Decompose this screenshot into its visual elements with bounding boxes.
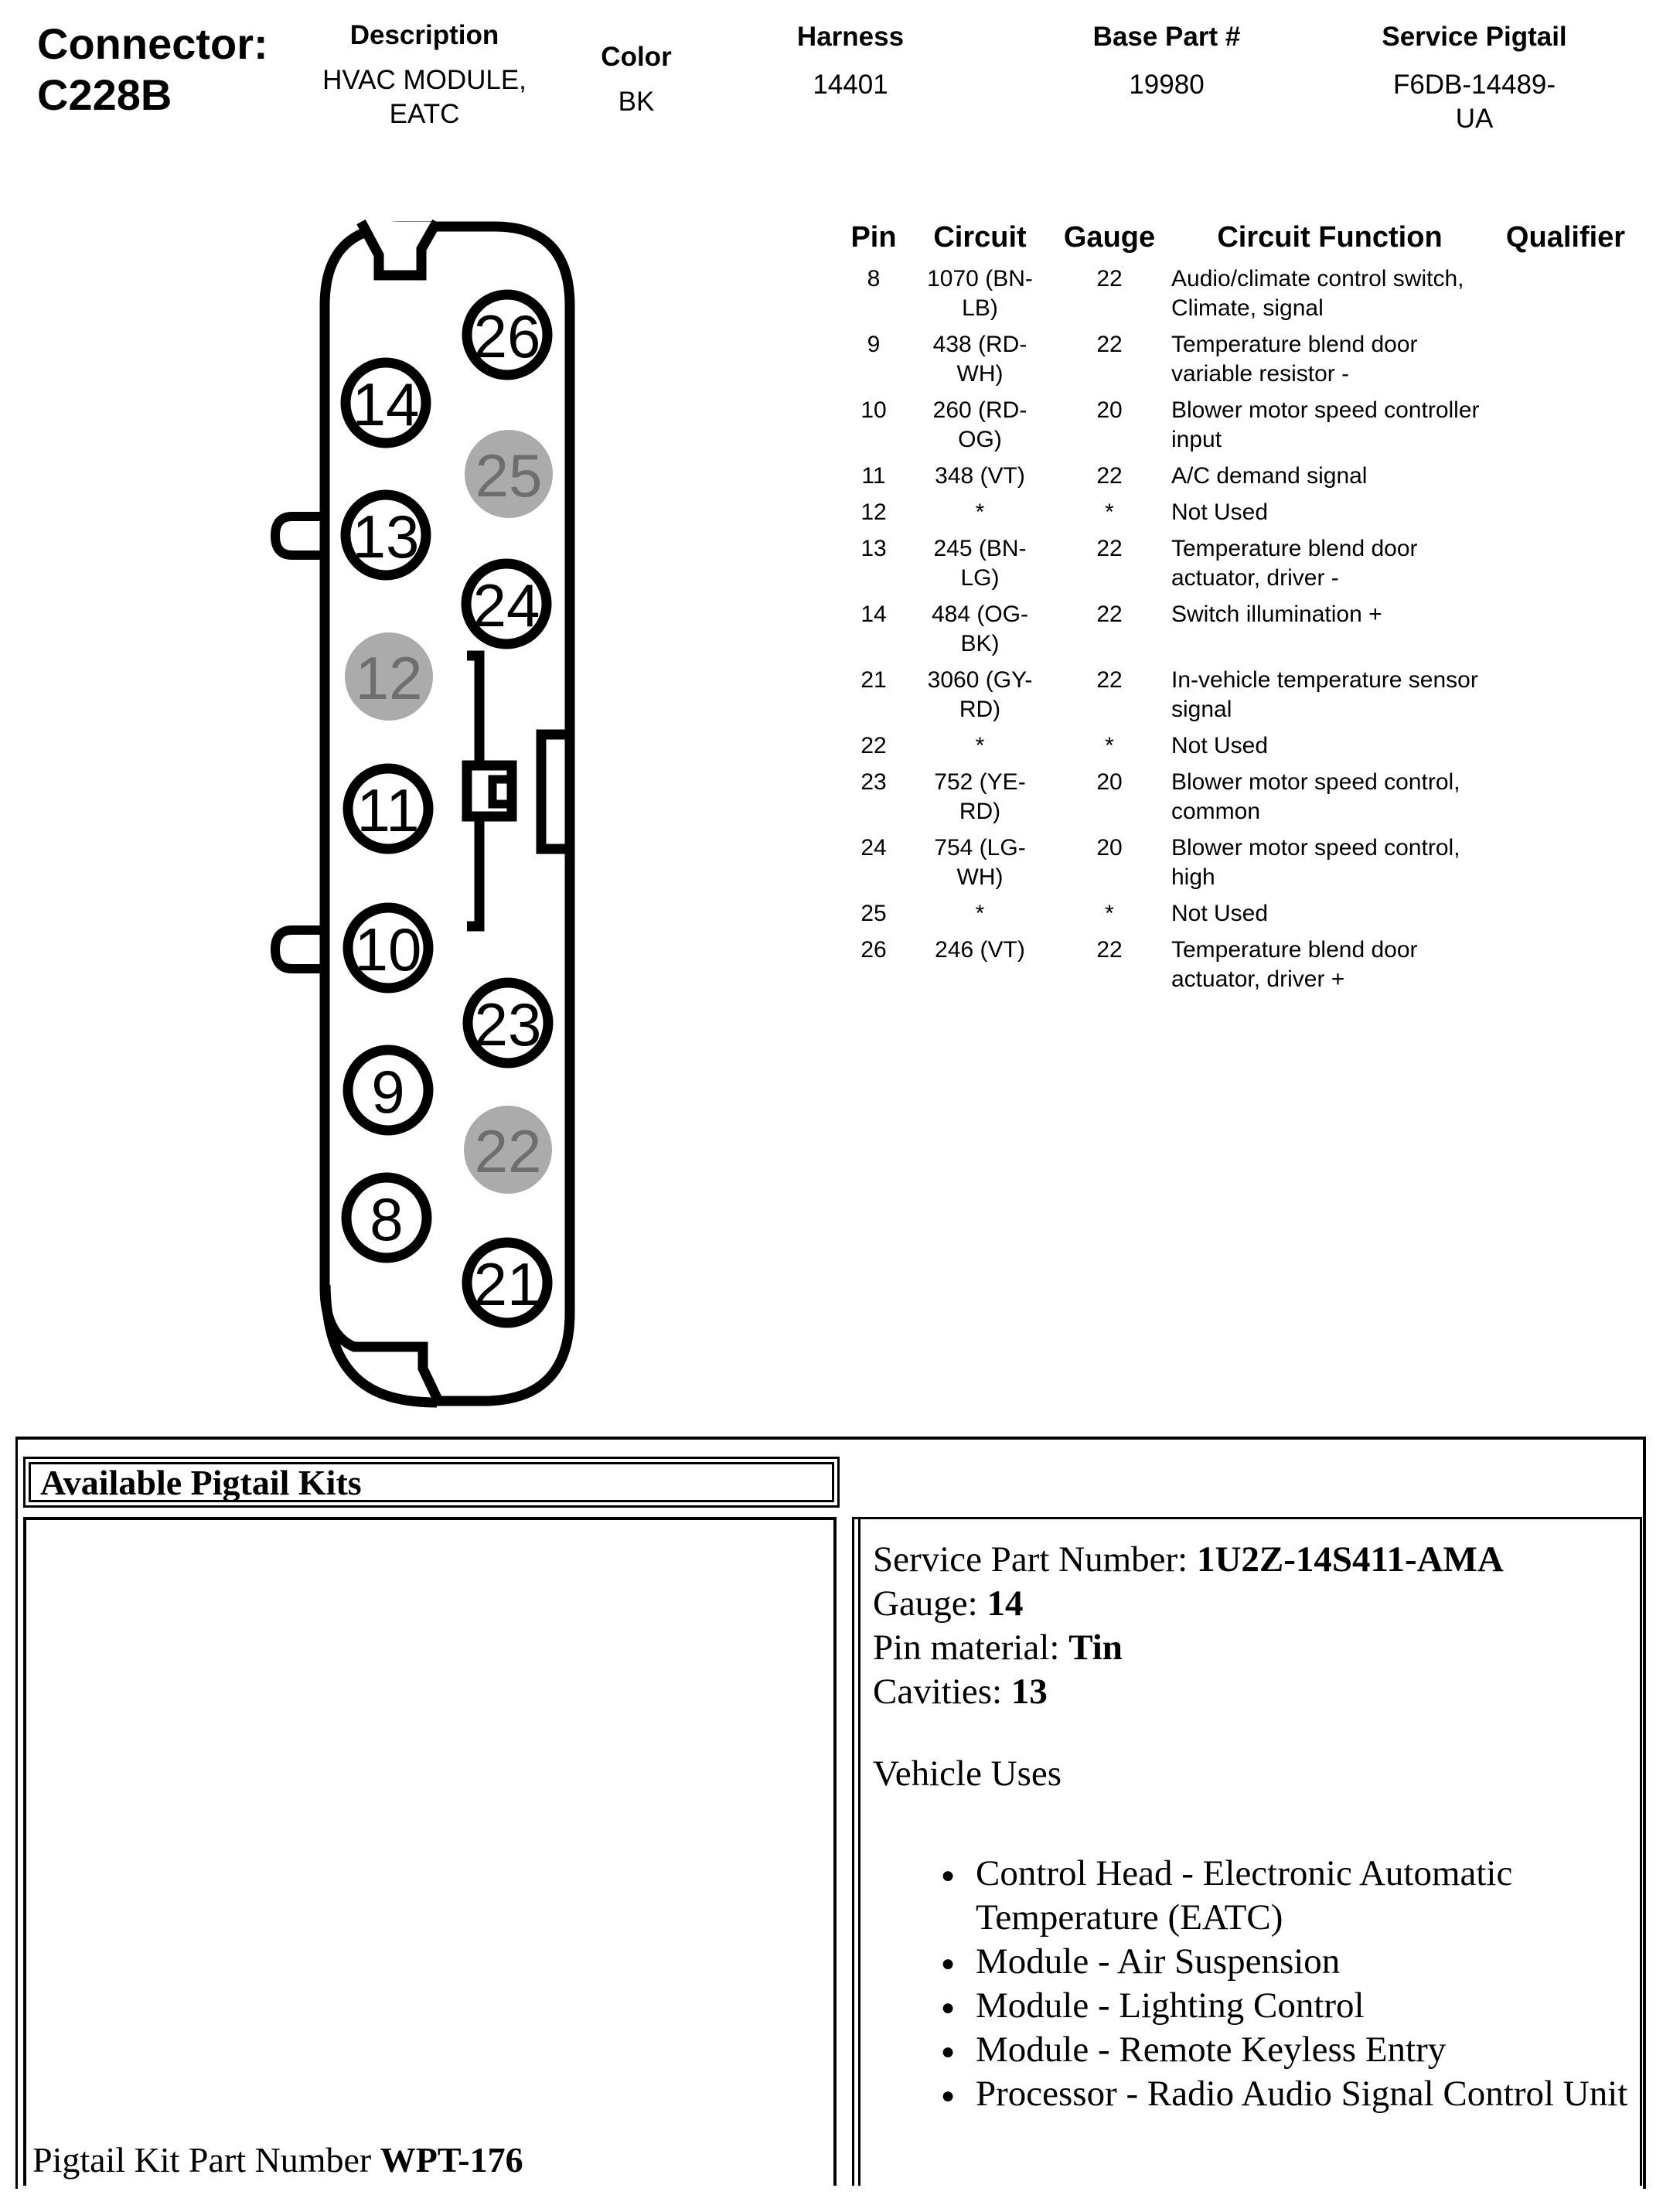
function-cell: A/C demand signal <box>1171 462 1488 491</box>
gauge-cell: 20 <box>1055 833 1164 892</box>
pin-row: 81070 (BN-LB)22Audio/climate control swi… <box>843 264 1663 323</box>
connector-title: Connector: C228B <box>37 19 268 121</box>
service-part-content: Service Part Number: 1U2Z-14S411-AMAGaug… <box>854 1519 1640 2116</box>
pin-cell: 11 <box>843 462 905 491</box>
pin-row: 24754 (LG-WH)20Blower motor speed contro… <box>843 833 1663 892</box>
vehicle-use-item: Control Head - Electronic Automatic Temp… <box>873 1852 1631 1940</box>
service-part-panel: Service Part Number: 1U2Z-14S411-AMAGaug… <box>852 1517 1642 2186</box>
pin-row: 9438 (RD-WH)22Temperature blend door var… <box>843 330 1663 389</box>
vehicle-uses-heading: Vehicle Uses <box>873 1752 1629 1796</box>
pin-number-label: 11 <box>357 776 420 844</box>
function-cell: Audio/climate control switch, Climate, s… <box>1171 264 1488 323</box>
header-field-base-part: Base Part # 19980 <box>1093 22 1241 102</box>
pin-number-label: 22 <box>475 1117 542 1185</box>
gauge-cell: 22 <box>1055 936 1164 994</box>
gauge-cell: 22 <box>1055 666 1164 724</box>
gauge-cell: * <box>1055 498 1164 527</box>
pin-number-label: 13 <box>353 503 420 571</box>
field-value: HVAC MODULE, EATC <box>293 63 556 131</box>
function-cell: Temperature blend door actuator, driver … <box>1171 936 1488 994</box>
pin-row: 25**Not Used <box>843 899 1663 929</box>
pin-cell: 26 <box>843 936 905 994</box>
gauge-cell: 22 <box>1055 534 1164 593</box>
pin-row: 14484 (OG-BK)22Switch illumination + <box>843 600 1663 659</box>
circuit-cell: 3060 (GY-RD) <box>912 666 1048 724</box>
circuit-cell: * <box>912 899 1048 929</box>
pigtail-kit-number-line: Pigtail Kit Part Number WPT-176 <box>32 2139 523 2180</box>
kit-number: WPT-176 <box>380 2140 523 2180</box>
pin-number-label: 23 <box>475 990 542 1058</box>
qualifier-cell <box>1496 899 1635 929</box>
vehicle-use-item: Module - Remote Keyless Entry <box>873 2028 1631 2072</box>
qualifier-cell <box>1496 768 1635 827</box>
pin-row: 213060 (GY-RD)22In-vehicle temperature s… <box>843 666 1663 724</box>
field-value: F6DB-14489-UA <box>1380 68 1569 136</box>
pigtail-kit-panel: Pigtail Kit Part Number WPT-176 <box>23 1517 837 2186</box>
function-cell: In-vehicle temperature sensor signal <box>1171 666 1488 724</box>
function-cell: Temperature blend door actuator, driver … <box>1171 534 1488 593</box>
circuit-cell: 245 (BN-LG) <box>912 534 1048 593</box>
pin-number-label: 24 <box>473 571 540 639</box>
pin-cell: 9 <box>843 330 905 389</box>
gauge-cell: * <box>1055 731 1164 761</box>
pin-number-label: 21 <box>474 1250 541 1318</box>
header-field-description: Description HVAC MODULE, EATC <box>293 20 556 131</box>
circuit-cell: 246 (VT) <box>912 936 1048 994</box>
col-header-function: Circuit Function <box>1171 220 1488 255</box>
pin-8: 8 <box>346 1178 427 1258</box>
function-cell: Blower motor speed control, high <box>1171 833 1488 892</box>
pin-23: 23 <box>468 983 548 1063</box>
pin-row: 10260 (RD-OG)20Blower motor speed contro… <box>843 396 1663 455</box>
pin-row: 26246 (VT)22Temperature blend door actua… <box>843 936 1663 994</box>
pin-cell: 25 <box>843 899 905 929</box>
vehicle-use-item: Processor - Radio Audio Signal Control U… <box>873 2072 1631 2116</box>
pin-row: 13245 (BN-LG)22Temperature blend door ac… <box>843 534 1663 593</box>
qualifier-cell <box>1496 666 1635 724</box>
detail-value: 14 <box>987 1583 1023 1624</box>
pin-9: 9 <box>348 1050 428 1130</box>
field-label: Service Pigtail <box>1380 22 1569 53</box>
circuit-cell: 1070 (BN-LB) <box>912 264 1048 323</box>
pinout-table: Pin Circuit Gauge Circuit Function Quali… <box>843 220 1663 1001</box>
pin-number-label: 12 <box>356 644 423 712</box>
field-label: Harness <box>797 22 904 53</box>
connector-face-diagram: 261425132412111023922821 <box>255 201 634 1438</box>
gauge-cell: 22 <box>1055 600 1164 659</box>
field-label: Color <box>601 42 671 73</box>
function-cell: Blower motor speed control, common <box>1171 768 1488 827</box>
pin-number-label: 25 <box>475 441 543 510</box>
field-label: Base Part # <box>1093 22 1241 53</box>
gauge-cell: 20 <box>1055 768 1164 827</box>
field-value: 19980 <box>1093 68 1241 102</box>
pin-cell: 8 <box>843 264 905 323</box>
pinout-table-header: Pin Circuit Gauge Circuit Function Quali… <box>843 220 1663 255</box>
pin-cell: 24 <box>843 833 905 892</box>
header-field-color: Color BK <box>601 42 671 119</box>
qualifier-cell <box>1496 264 1635 323</box>
circuit-cell: 438 (RD-WH) <box>912 330 1048 389</box>
pin-cell: 22 <box>843 731 905 761</box>
pin-21: 21 <box>467 1242 547 1323</box>
function-cell: Not Used <box>1171 731 1488 761</box>
pin-cell: 21 <box>843 666 905 724</box>
pin-22: 22 <box>464 1106 552 1194</box>
pigtail-kits-title: Available Pigtail Kits <box>40 1462 362 1503</box>
pin-row: 22**Not Used <box>843 731 1663 761</box>
pin-number-label: 14 <box>353 370 420 438</box>
detail-line: Service Part Number: 1U2Z-14S411-AMA <box>873 1538 1629 1582</box>
field-label: Description <box>293 20 556 51</box>
qualifier-cell <box>1496 534 1635 593</box>
function-cell: Switch illumination + <box>1171 600 1488 659</box>
qualifier-cell <box>1496 936 1635 994</box>
detail-line: Gauge: 14 <box>873 1582 1629 1626</box>
pin-12: 12 <box>345 632 433 721</box>
pin-cell: 13 <box>843 534 905 593</box>
vehicle-uses-list: Control Head - Electronic Automatic Temp… <box>873 1852 1631 2116</box>
pigtail-kits-title-inner: Available Pigtail Kits <box>29 1462 834 1502</box>
function-cell: Blower motor speed controller input <box>1171 396 1488 455</box>
field-value: 14401 <box>797 68 904 102</box>
qualifier-cell <box>1496 600 1635 659</box>
detail-label: Pin material: <box>873 1627 1068 1668</box>
gauge-cell: 22 <box>1055 330 1164 389</box>
qualifier-cell <box>1496 833 1635 892</box>
pin-number-label: 9 <box>371 1058 404 1126</box>
pin-cell: 14 <box>843 600 905 659</box>
pin-26: 26 <box>467 295 547 375</box>
pin-10: 10 <box>348 908 428 988</box>
detail-line: Pin material: Tin <box>873 1626 1629 1670</box>
function-cell: Temperature blend door variable resistor… <box>1171 330 1488 389</box>
pin-25: 25 <box>465 430 553 518</box>
pinout-table-body: 81070 (BN-LB)22Audio/climate control swi… <box>843 264 1663 994</box>
header-field-service-pigtail: Service Pigtail F6DB-14489-UA <box>1380 22 1569 136</box>
qualifier-cell <box>1496 462 1635 491</box>
function-cell: Not Used <box>1171 498 1488 527</box>
pin-row: 11348 (VT)22A/C demand signal <box>843 462 1663 491</box>
pin-13: 13 <box>346 495 426 575</box>
detail-value: 13 <box>1011 1672 1048 1712</box>
pin-number-label: 8 <box>370 1185 403 1253</box>
vehicle-use-item: Module - Air Suspension <box>873 1940 1631 1984</box>
pin-cell: 23 <box>843 768 905 827</box>
circuit-cell: 752 (YE-RD) <box>912 768 1048 827</box>
connector-spec-page: Connector: C228B Description HVAC MODULE… <box>0 0 1663 2212</box>
col-header-qualifier: Qualifier <box>1496 220 1635 255</box>
col-header-gauge: Gauge <box>1055 220 1164 255</box>
col-header-pin: Pin <box>843 220 905 255</box>
gauge-cell: 22 <box>1055 264 1164 323</box>
col-header-circuit: Circuit <box>912 220 1048 255</box>
connector-id: C228B <box>37 70 268 121</box>
pin-row: 12**Not Used <box>843 498 1663 527</box>
qualifier-cell <box>1496 731 1635 761</box>
circuit-cell: 348 (VT) <box>912 462 1048 491</box>
pin-cell: 12 <box>843 498 905 527</box>
detail-label: Cavities: <box>873 1672 1011 1712</box>
detail-value: 1U2Z-14S411-AMA <box>1197 1539 1504 1580</box>
function-cell: Not Used <box>1171 899 1488 929</box>
circuit-cell: 754 (LG-WH) <box>912 833 1048 892</box>
pigtail-kits-title-box: Available Pigtail Kits <box>23 1457 840 1508</box>
pin-14: 14 <box>346 363 426 443</box>
header-field-harness: Harness 14401 <box>797 22 904 102</box>
qualifier-cell <box>1496 330 1635 389</box>
pin-cell: 10 <box>843 396 905 455</box>
pin-row: 23752 (YE-RD)20Blower motor speed contro… <box>843 768 1663 827</box>
circuit-cell: 260 (RD-OG) <box>912 396 1048 455</box>
pin-number-label: 10 <box>355 915 422 983</box>
kit-label: Pigtail Kit Part Number <box>32 2140 371 2180</box>
qualifier-cell <box>1496 396 1635 455</box>
vehicle-use-item: Module - Lighting Control <box>873 1984 1631 2028</box>
circuit-cell: * <box>912 731 1048 761</box>
gauge-cell: 22 <box>1055 462 1164 491</box>
service-part-details: Service Part Number: 1U2Z-14S411-AMAGaug… <box>873 1538 1629 1714</box>
gauge-cell: * <box>1055 899 1164 929</box>
pin-11: 11 <box>348 769 428 849</box>
gauge-cell: 20 <box>1055 396 1164 455</box>
detail-label: Service Part Number: <box>873 1539 1197 1580</box>
detail-label: Gauge: <box>873 1583 987 1624</box>
pin-24: 24 <box>466 564 547 644</box>
circuit-cell: * <box>912 498 1048 527</box>
circuit-cell: 484 (OG-BK) <box>912 600 1048 659</box>
connector-label: Connector: <box>37 19 268 70</box>
field-value: BK <box>601 85 671 119</box>
detail-value: Tin <box>1068 1627 1123 1668</box>
detail-line: Cavities: 13 <box>873 1670 1629 1714</box>
qualifier-cell <box>1496 498 1635 527</box>
pin-number-label: 26 <box>474 302 541 370</box>
